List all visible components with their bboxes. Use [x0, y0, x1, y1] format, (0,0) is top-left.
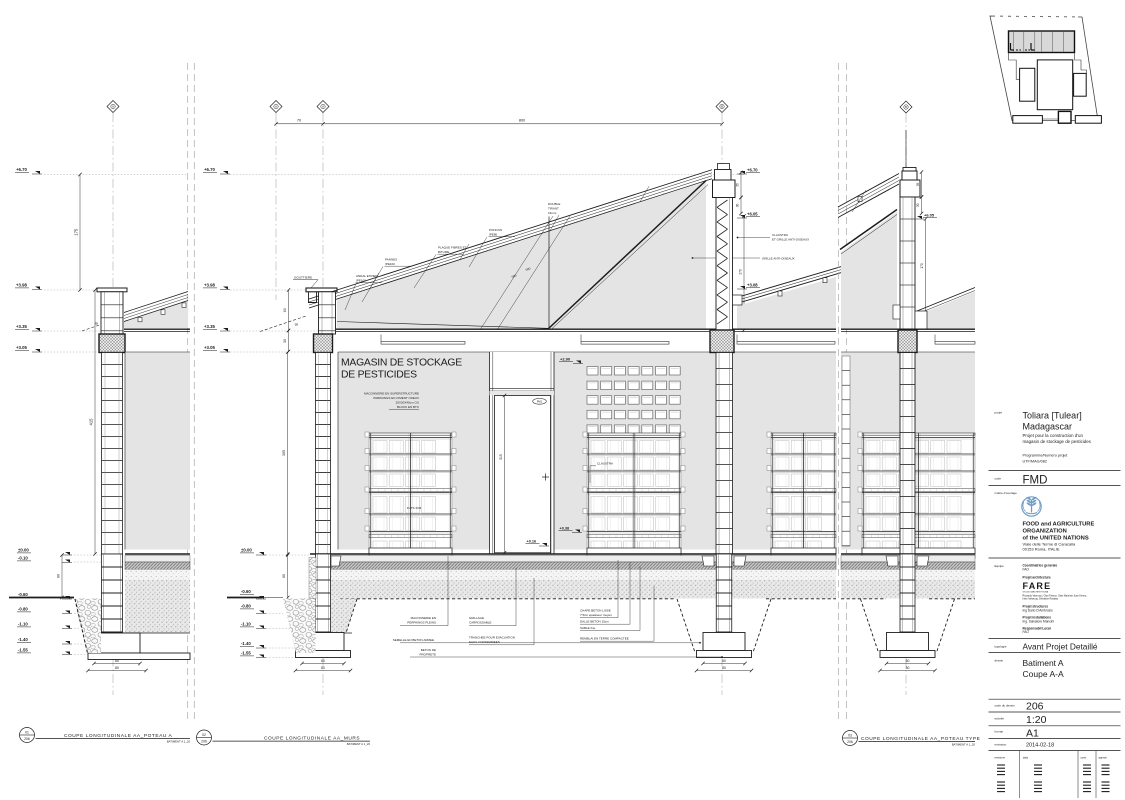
svg-text:emission: emission [995, 743, 1007, 747]
svg-text:305: 305 [282, 450, 286, 456]
svg-text:-1.40: -1.40 [241, 641, 251, 646]
svg-text:+2.90: +2.90 [560, 357, 571, 362]
svg-text:UTF/MAG/082: UTF/MAG/082 [1023, 460, 1047, 464]
svg-text:+3.35: +3.35 [204, 324, 215, 329]
svg-text:35: 35 [916, 183, 920, 187]
svg-text:+6.70: +6.70 [747, 168, 758, 173]
svg-text:30: 30 [736, 204, 740, 208]
svg-text:FMD: FMD [1023, 475, 1048, 487]
svg-text:Toliara [Tulear]: Toliara [Tulear] [1023, 411, 1082, 421]
svg-text:02: 02 [202, 733, 206, 737]
svg-text:MAGASIN DE STOCKAGE: MAGASIN DE STOCKAGE [341, 358, 462, 369]
svg-text:Projet architecture: Projet architecture [1023, 576, 1051, 580]
svg-text:1:20: 1:20 [1026, 714, 1047, 726]
svg-text:BATIMENT A 1_20: BATIMENT A 1_20 [952, 742, 976, 746]
svg-text:+6.70: +6.70 [204, 167, 215, 172]
svg-text:COUPE LONGITUDINALE AA_POTEAU: COUPE LONGITUDINALE AA_POTEAU A [64, 733, 172, 739]
svg-text:+6.70: +6.70 [16, 167, 27, 172]
svg-text:PARPAINGS EN CIMENT CREUX: PARPAINGS EN CIMENT CREUX [373, 396, 419, 400]
svg-text:PANNES: PANNES [385, 258, 397, 262]
svg-text:+6.05: +6.05 [747, 212, 758, 217]
svg-text:IPE100: IPE100 [356, 278, 366, 282]
svg-text:+3.98: +3.98 [16, 283, 27, 288]
svg-text:BATIMENT A 1_20: BATIMENT A 1_20 [167, 739, 191, 743]
svg-text:±0.00: ±0.00 [18, 548, 29, 553]
svg-text:206: 206 [847, 740, 853, 744]
svg-text:TIRANT: TIRANT [548, 206, 559, 210]
svg-text:CLAUSTRA: CLAUSTRA [597, 462, 613, 466]
svg-text:CARROSSABLE: CARROSSABLE [469, 621, 492, 625]
svg-text:80: 80 [906, 666, 910, 670]
svg-text:code du dessin: code du dessin [995, 704, 1016, 708]
svg-text:206: 206 [201, 740, 207, 744]
svg-text:2014-02-18: 2014-02-18 [1026, 743, 1054, 749]
svg-text:03: 03 [848, 734, 852, 738]
svg-text:16mm: 16mm [548, 211, 557, 215]
svg-text:-1.55: -1.55 [18, 648, 28, 653]
svg-text:ORGANIZATION: ORGANIZATION [1023, 529, 1067, 535]
svg-text:B: B [905, 105, 907, 109]
svg-text:-0.60: -0.60 [18, 592, 28, 597]
svg-text:ET GRILLE ANTI-OISEAUX: ET GRILLE ANTI-OISEAUX [772, 238, 809, 242]
svg-text:maitre d'ouvrage: maitre d'ouvrage [995, 491, 1018, 495]
svg-text:63: 63 [283, 308, 287, 312]
svg-text:60: 60 [321, 659, 325, 663]
svg-text:COUPE LONGITUDINALE AA_MURS: COUPE LONGITUDINALE AA_MURS [264, 735, 360, 741]
svg-text:FAO: FAO [1023, 630, 1030, 634]
svg-text:+0.38: +0.38 [560, 527, 570, 531]
svg-text:80: 80 [722, 666, 726, 670]
svg-text:+3.98: +3.98 [204, 283, 215, 288]
svg-text:magasin de stockage de pestici: magasin de stockage de pesticides [1023, 439, 1092, 444]
svg-text:MACONNERIE EN: MACONNERIE EN [411, 616, 436, 620]
svg-text:DALLE BETON 15cm: DALLE BETON 15cm [580, 620, 609, 624]
svg-text:30: 30 [283, 339, 287, 343]
svg-text:30: 30 [916, 203, 920, 207]
svg-text:MACONNERIE EN SUPERSTRUCTURE: MACONNERIE EN SUPERSTRUCTURE [364, 392, 419, 396]
svg-text:206: 206 [24, 737, 30, 741]
svg-text:270: 270 [739, 269, 743, 275]
svg-text:BETON DE: BETON DE [421, 648, 436, 652]
svg-text:PROPRETE: PROPRETE [419, 653, 436, 657]
svg-text:IPE100: IPE100 [385, 262, 395, 266]
svg-text:315: 315 [499, 454, 503, 460]
svg-text:TRANCHEE POUR EVACUATION: TRANCHEE POUR EVACUATION [469, 636, 515, 640]
svg-text:A1: A1 [1026, 728, 1039, 740]
svg-text:DE PESTICIDES: DE PESTICIDES [341, 370, 417, 381]
svg-text:Avant Projet Detaillé: Avant Projet Detaillé [1023, 642, 1098, 652]
svg-text:contr.: contr. [1081, 756, 1088, 760]
svg-text:175: 175 [74, 228, 79, 236]
svg-text:BLOCK EN BTC: BLOCK EN BTC [397, 405, 420, 409]
svg-text:Ing. Salvatore Mancini: Ing. Salvatore Mancini [1023, 620, 1055, 624]
svg-text:A: A [322, 105, 324, 109]
svg-text:SABLE fine: SABLE fine [580, 626, 596, 630]
svg-text:EAUX CONTAMINEES: EAUX CONTAMINEES [469, 640, 500, 644]
svg-text:GRILLAGE: GRILLAGE [469, 616, 484, 620]
svg-text:REMBLAI EN TERRE COMPACTEE: REMBLAI EN TERRE COMPACTEE [580, 637, 629, 641]
svg-text:-1.55: -1.55 [241, 651, 251, 656]
svg-text:dessin: dessin [995, 659, 1004, 663]
svg-text:BITUME: BITUME [438, 250, 449, 254]
svg-text:-1.40: -1.40 [18, 637, 28, 642]
svg-text:Inies Vahoung, Ghislaine Rosat: Inies Vahoung, Ghislaine Rosatta [1023, 598, 1059, 601]
svg-text:echelle: echelle [995, 717, 1005, 721]
svg-text:COUPE LONGITUDINALE AA_POTEAU: COUPE LONGITUDINALE AA_POTEAU TYPE [861, 736, 980, 742]
svg-text:CHAPE BETON LISSE: CHAPE BETON LISSE [580, 609, 611, 613]
svg-text:+3.05: +3.05 [16, 345, 27, 350]
svg-text:+3.35: +3.35 [16, 324, 27, 329]
svg-text:415: 415 [89, 418, 94, 426]
svg-text:FOOD and AGRICULTURE: FOOD and AGRICULTURE [1023, 522, 1095, 528]
svg-text:BATIMENT A 1_20: BATIMENT A 1_20 [347, 742, 371, 746]
svg-text:60: 60 [57, 574, 61, 578]
svg-text:00153 Roma, ITALIE: 00153 Roma, ITALIE [1023, 547, 1060, 552]
svg-text:01: 01 [25, 731, 29, 735]
svg-text:60: 60 [722, 659, 726, 663]
svg-text:typologie: typologie [995, 645, 1007, 649]
svg-text:FUTS 200l: FUTS 200l [407, 506, 422, 510]
svg-text:Equipe: Equipe [995, 564, 1005, 568]
svg-text:A: A [275, 105, 277, 109]
svg-text:Batiment A: Batiment A [1023, 658, 1064, 668]
svg-text:Coupe A-A: Coupe A-A [1023, 669, 1064, 679]
svg-text:GRILLE ANTI-OISEAUX: GRILLE ANTI-OISEAUX [762, 257, 795, 261]
svg-text:60: 60 [282, 574, 286, 578]
svg-text:170: 170 [920, 263, 924, 269]
svg-text:35: 35 [736, 183, 740, 187]
svg-text:PERPAINGS PLEINS: PERPAINGS PLEINS [407, 621, 436, 625]
svg-text:Ing Dario D'Ambrosio: Ing Dario D'Ambrosio [1023, 609, 1053, 613]
svg-text:206: 206 [1026, 701, 1044, 713]
svg-text:800: 800 [519, 118, 525, 122]
svg-text:20X20X40cm OU: 20X20X40cm OU [396, 401, 419, 405]
svg-text:+6.05: +6.05 [924, 213, 935, 218]
svg-text:STUDIO ARCHITETTURA: STUDIO ARCHITETTURA [1023, 590, 1049, 593]
svg-text:80: 80 [115, 666, 119, 670]
svg-text:DOUBLE: DOUBLE [548, 202, 560, 206]
svg-text:Projet pour la construction d': Projet pour la construction d'un [1023, 433, 1084, 438]
svg-text:70: 70 [297, 118, 301, 122]
svg-text:approb.: approb. [1099, 756, 1108, 760]
svg-text:7.5cm epaisseur moyen: 7.5cm epaisseur moyen [580, 613, 612, 617]
svg-text:B: B [721, 105, 723, 109]
svg-text:-0.80: -0.80 [241, 604, 251, 609]
svg-text:+0.16: +0.16 [527, 540, 537, 544]
svg-text:60: 60 [115, 659, 119, 663]
svg-text:Madagascar: Madagascar [1023, 422, 1073, 432]
svg-text:ANDAL ETRIER: ANDAL ETRIER [356, 274, 379, 278]
svg-text:-1.10: -1.10 [18, 622, 28, 627]
svg-text:60: 60 [906, 659, 910, 663]
svg-text:SEMELLE EN BETON ARMEE: SEMELLE EN BETON ARMEE [393, 638, 434, 642]
svg-text:GOUTTIERE: GOUTTIERE [294, 276, 312, 280]
svg-text:data: data [1023, 756, 1029, 760]
svg-text:-0.60: -0.60 [241, 589, 251, 594]
svg-text:-0.10: -0.10 [18, 556, 28, 561]
svg-text:+3.08: +3.08 [747, 283, 758, 288]
svg-text:IPE80: IPE80 [489, 232, 498, 236]
svg-text:+3.05: +3.05 [204, 345, 215, 350]
svg-text:CLAUSTRA: CLAUSTRA [772, 233, 788, 237]
svg-text:A: A [112, 105, 114, 109]
svg-text:FAO: FAO [1023, 568, 1030, 572]
svg-text:Programme/Numero projet: Programme/Numero projet [1023, 454, 1069, 458]
svg-text:format: format [995, 730, 1004, 734]
svg-text:projet: projet [995, 411, 1003, 415]
svg-text:PONCON: PONCON [489, 228, 502, 232]
svg-text:-1.10: -1.10 [241, 622, 251, 627]
svg-text:FARE: FARE [1023, 581, 1052, 591]
svg-text:80: 80 [321, 666, 325, 670]
svg-text:code: code [995, 477, 1002, 481]
svg-text:revisione: revisione [995, 756, 1006, 760]
svg-text:-0.80: -0.80 [18, 607, 28, 612]
svg-text:PLAQUE FIBRES ET: PLAQUE FIBRES ET [438, 246, 467, 250]
svg-text:PM1: PM1 [537, 400, 543, 404]
svg-text:±0.00: ±0.00 [241, 548, 252, 553]
